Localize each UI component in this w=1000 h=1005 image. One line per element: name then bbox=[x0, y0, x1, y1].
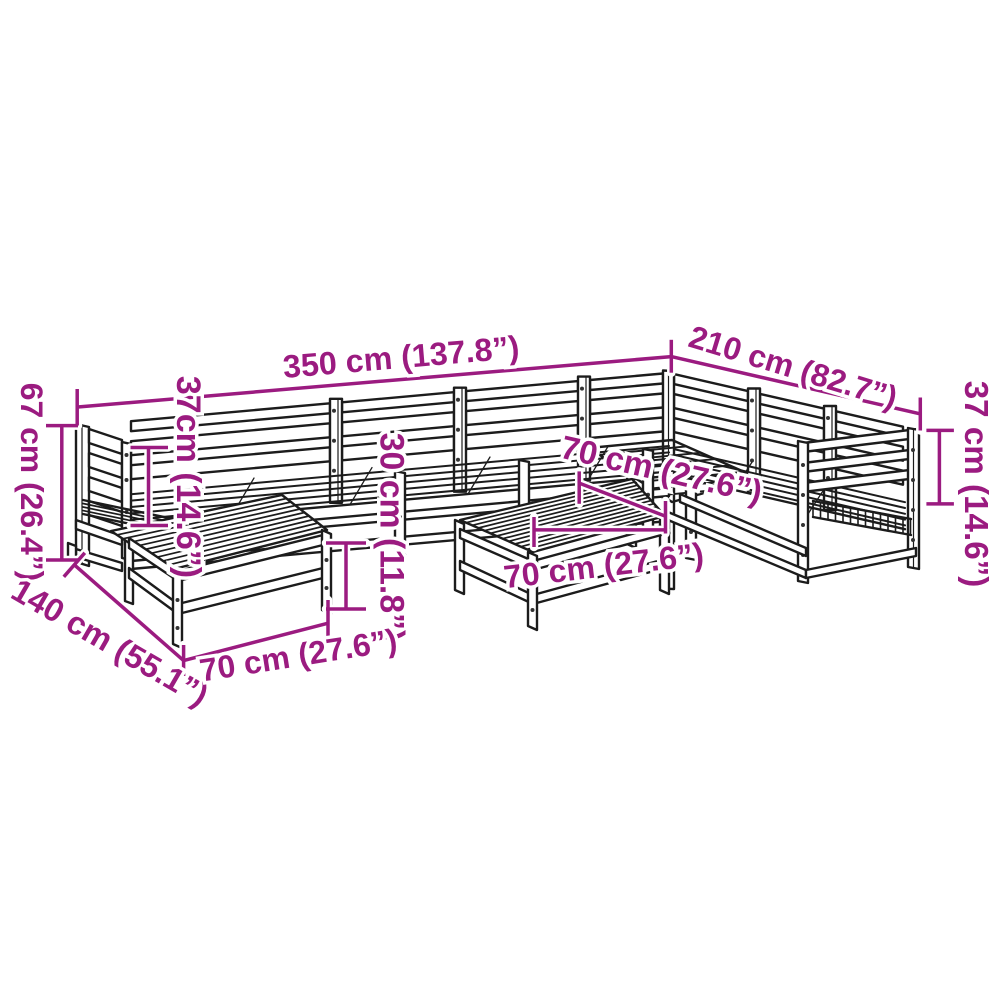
svg-text:67 cm (26.4”): 67 cm (26.4”) bbox=[14, 383, 50, 582]
svg-text:37 cm (14.6”): 37 cm (14.6”) bbox=[957, 381, 994, 588]
svg-text:37cm (14.6”): 37cm (14.6”) bbox=[169, 376, 207, 578]
svg-text:30 cm (11.8”): 30 cm (11.8”) bbox=[373, 433, 411, 642]
